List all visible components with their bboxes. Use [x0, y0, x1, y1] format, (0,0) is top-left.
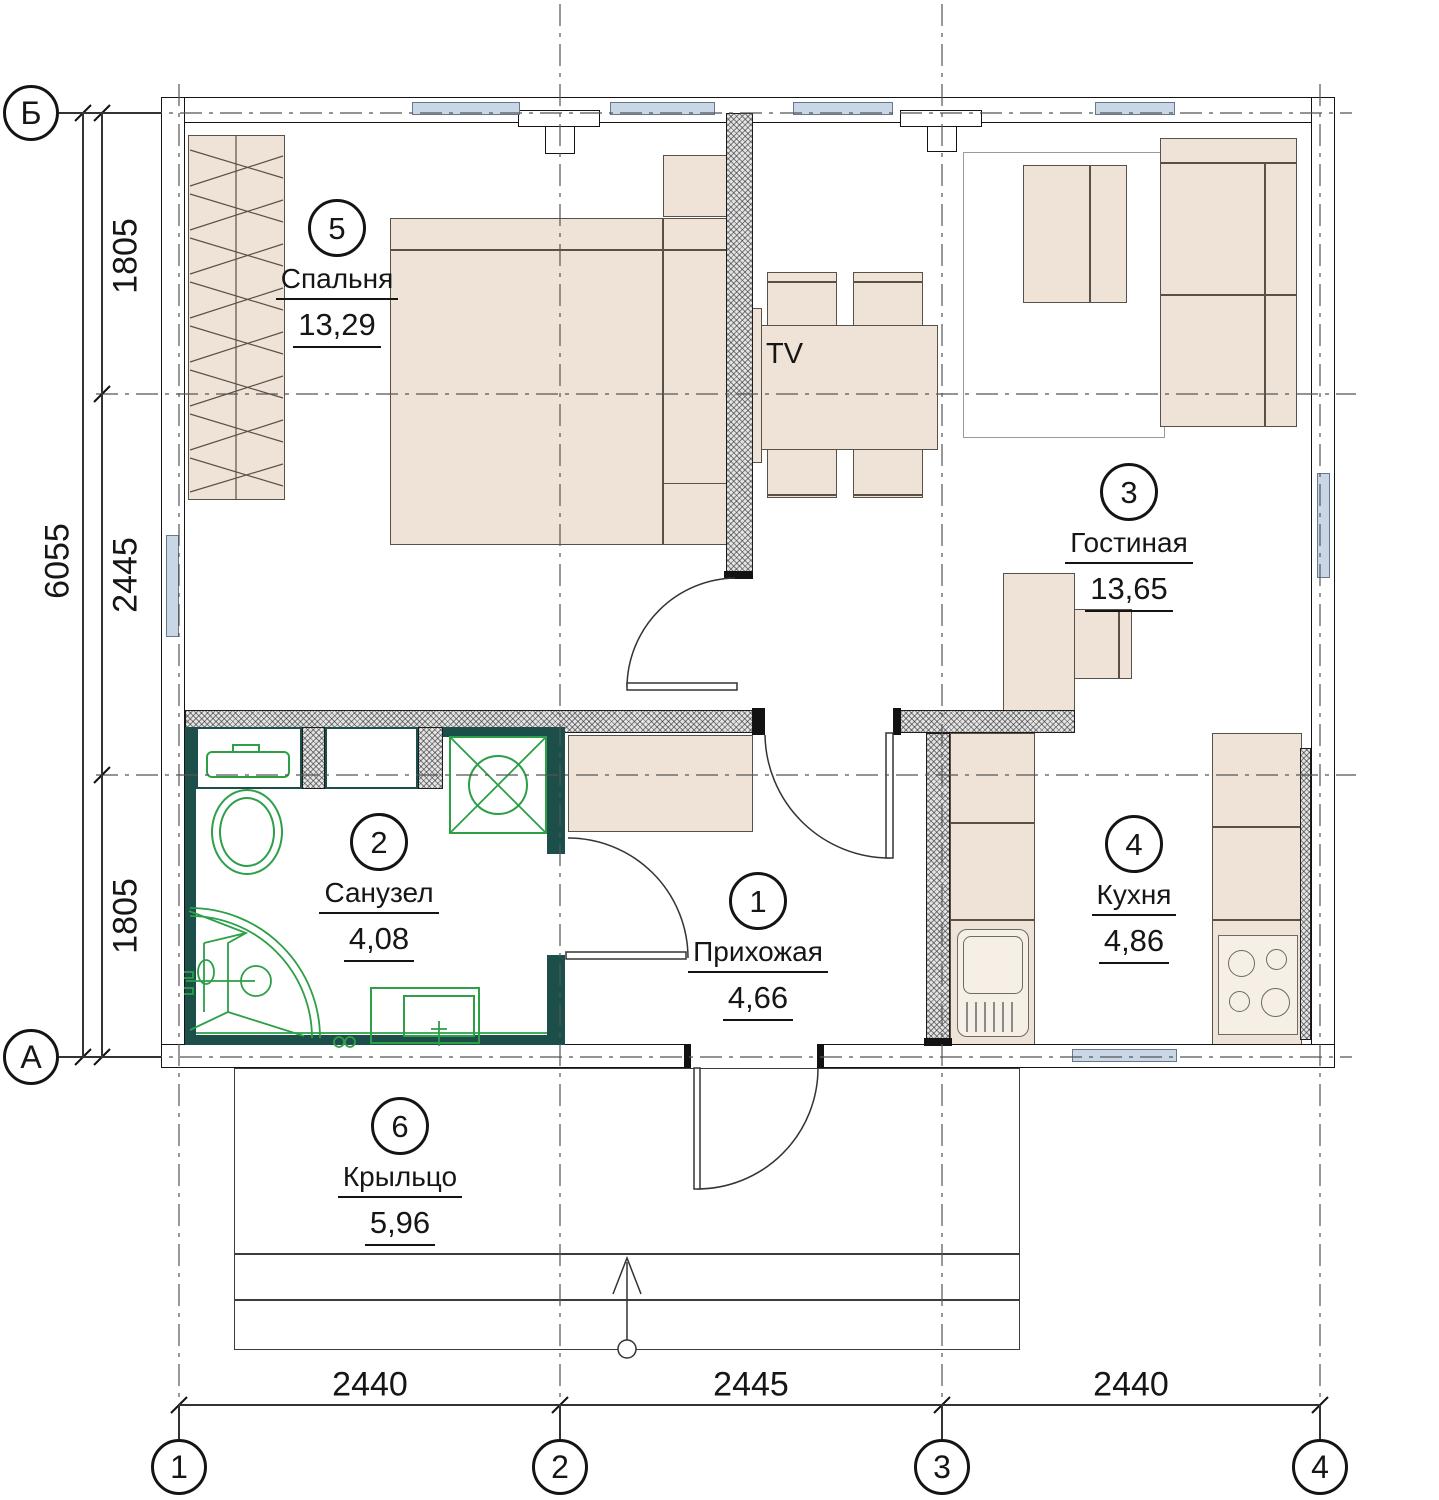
- extension-line: [941, 1405, 943, 1441]
- dim-bottom-seg-1: 2440: [332, 1366, 408, 1405]
- dimension-line-left-total: [82, 113, 84, 1057]
- wall-cap: [893, 708, 901, 735]
- axis-circle-4: 4: [1292, 1439, 1348, 1495]
- floor-plan: 6055 1805 2445 1805 2440 2445 2440 Б А 1…: [0, 0, 1439, 1500]
- shower-drain-circle: [468, 755, 528, 815]
- chair-back-line: [767, 494, 837, 496]
- column-stub: [545, 126, 575, 154]
- column-stub: [518, 110, 600, 127]
- sofa-line: [1264, 162, 1266, 427]
- extension-line: [59, 1056, 161, 1058]
- vanity-basin: [403, 995, 475, 1037]
- sink-drain-line: [984, 1002, 986, 1032]
- wall-cap: [924, 1038, 952, 1046]
- burner: [1261, 988, 1290, 1017]
- room-name: Гостиная: [1065, 527, 1193, 564]
- room-number: 5: [308, 199, 366, 257]
- room-label-kitchen: 4 Кухня 4,86: [1004, 815, 1264, 964]
- coffee-table: [1023, 165, 1127, 303]
- sink-drain-line: [966, 1002, 968, 1032]
- hallway-cabinet: [568, 735, 753, 832]
- room-name: Санузел: [319, 877, 438, 914]
- dim-bottom-seg-2: 2445: [713, 1366, 789, 1405]
- window: [793, 102, 893, 115]
- partition-hall-right: [895, 710, 1075, 733]
- window: [166, 535, 179, 637]
- column-stub: [900, 110, 982, 127]
- porch-step: [234, 1253, 1020, 1255]
- tv-label: TV: [766, 338, 803, 371]
- axis-label: 3: [933, 1449, 951, 1486]
- wall-cap: [752, 708, 765, 735]
- room-name: Прихожая: [688, 936, 828, 973]
- nightstand: [663, 155, 728, 217]
- axis-label: 2: [551, 1449, 569, 1486]
- room-name: Крыльцо: [338, 1161, 462, 1198]
- room-area: 13,65: [1085, 571, 1173, 612]
- partition-bedroom: [726, 113, 753, 578]
- door-arc-bedroom: [627, 578, 735, 687]
- sink-drain-line: [975, 1002, 977, 1032]
- sofa: [1160, 138, 1297, 427]
- axis-circle-3: 3: [914, 1439, 970, 1495]
- door-arc-living: [765, 735, 890, 858]
- chair-back-line: [853, 281, 923, 283]
- cistern-icon: [206, 751, 290, 778]
- tv-panel: [752, 308, 762, 463]
- shower-head-icon: [198, 960, 214, 984]
- sink-drain-line: [993, 1002, 995, 1032]
- room-area: 4,86: [1099, 923, 1169, 964]
- kitchen-wall-lining: [1300, 748, 1311, 1040]
- niche-divider: [302, 727, 325, 789]
- exterior-wall-bottom: [161, 1044, 690, 1068]
- window: [412, 102, 520, 115]
- sink-drain-line: [1011, 1002, 1013, 1032]
- wall-niche: [325, 727, 418, 789]
- shower-head-icon: [241, 966, 271, 996]
- bathroom-wall: [547, 955, 565, 1045]
- extension-line: [1319, 1405, 1321, 1441]
- sink-drain-line: [1002, 1002, 1004, 1032]
- door-jamb: [684, 1044, 691, 1068]
- nightstand: [663, 483, 728, 545]
- room-area: 5,96: [365, 1205, 435, 1246]
- room-name: Кухня: [1092, 879, 1177, 916]
- room-label-porch: 6 Крыльцо 5,96: [270, 1097, 530, 1246]
- dim-bottom-seg-3: 2440: [1093, 1366, 1169, 1405]
- axis-label: А: [20, 1039, 41, 1076]
- door-leaf-bedroom: [627, 683, 737, 690]
- axis-label: 4: [1311, 1449, 1329, 1486]
- column-stub: [927, 126, 957, 152]
- window: [1072, 1049, 1177, 1062]
- room-number: 2: [350, 813, 408, 871]
- dimension-line-left-segments: [101, 113, 103, 1057]
- axis-label: 1: [170, 1449, 188, 1486]
- room-area: 4,66: [723, 980, 793, 1021]
- partition-kitchen: [926, 733, 950, 1045]
- desk-chair-line: [1118, 609, 1120, 679]
- room-area: 4,08: [344, 921, 414, 962]
- window: [610, 102, 715, 115]
- sofa-line: [1160, 162, 1297, 164]
- burner: [1229, 991, 1250, 1012]
- exterior-wall-right: [1311, 97, 1335, 1068]
- dim-left-seg-2: 2445: [107, 537, 146, 613]
- axis-label: Б: [21, 95, 42, 132]
- axis-circle-b: Б: [3, 85, 59, 141]
- window: [1317, 473, 1330, 578]
- chair-back-line: [767, 281, 837, 283]
- porch-step: [234, 1299, 1020, 1301]
- extension-line: [59, 112, 161, 114]
- coffee-table-line: [1089, 165, 1091, 303]
- extension-line: [178, 1405, 180, 1441]
- room-area: 13,29: [293, 307, 381, 348]
- room-label-hallway: 1 Прихожая 4,66: [628, 872, 888, 1021]
- room-number: 6: [371, 1097, 429, 1155]
- niche-divider: [418, 727, 443, 789]
- axis-circle-2: 2: [532, 1439, 588, 1495]
- door-jamb: [817, 1044, 824, 1068]
- room-name: Спальня: [276, 263, 399, 300]
- room-label-bedroom: 5 Спальня 13,29: [207, 199, 467, 348]
- room-number: 1: [729, 872, 787, 930]
- room-label-living: 3 Гостиная 13,65: [999, 463, 1259, 612]
- dim-left-total: 6055: [39, 523, 78, 599]
- chair-back-line: [853, 494, 923, 496]
- bathroom-wall: [547, 727, 565, 854]
- door-leaf-living: [886, 733, 893, 858]
- wall-cap: [724, 571, 753, 579]
- bathroom-wall: [185, 727, 196, 1045]
- room-number: 3: [1100, 463, 1158, 521]
- window: [1095, 102, 1175, 115]
- dim-left-seg-3: 1805: [107, 878, 146, 954]
- axis-circle-1: 1: [151, 1439, 207, 1495]
- room-label-bathroom: 2 Санузел 4,08: [249, 813, 509, 962]
- sofa-line: [1160, 294, 1297, 296]
- dim-left-seg-1: 1805: [107, 218, 146, 294]
- room-number: 4: [1105, 815, 1163, 873]
- burner: [1266, 949, 1287, 970]
- cistern-button: [232, 744, 260, 753]
- axis-circle-a: А: [3, 1029, 59, 1085]
- extension-line: [559, 1405, 561, 1441]
